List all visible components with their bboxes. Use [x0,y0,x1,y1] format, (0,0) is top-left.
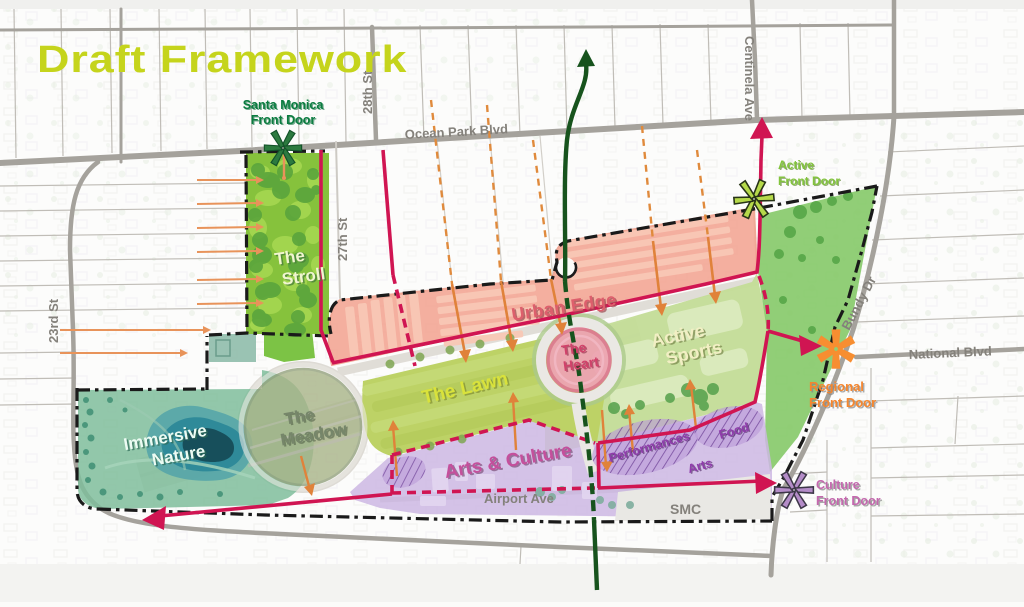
svg-text:Front Door: Front Door [778,174,840,188]
svg-text:Santa Monica: Santa Monica [243,98,325,112]
svg-text:SMC: SMC [670,501,701,517]
svg-text:Front Door: Front Door [251,113,316,127]
svg-text:Active: Active [778,158,814,172]
svg-text:Centinela Ave: Centinela Ave [742,36,757,121]
svg-text:Front Door: Front Door [809,395,876,410]
svg-text:Front Door: Front Door [816,494,881,508]
svg-text:27th St: 27th St [335,217,350,261]
svg-text:Draft Framework: Draft Framework [37,37,407,80]
svg-text:Culture: Culture [816,478,860,492]
svg-text:Airport Ave: Airport Ave [484,491,554,506]
svg-text:Regional: Regional [809,379,864,394]
svg-text:23rd St: 23rd St [46,298,61,343]
